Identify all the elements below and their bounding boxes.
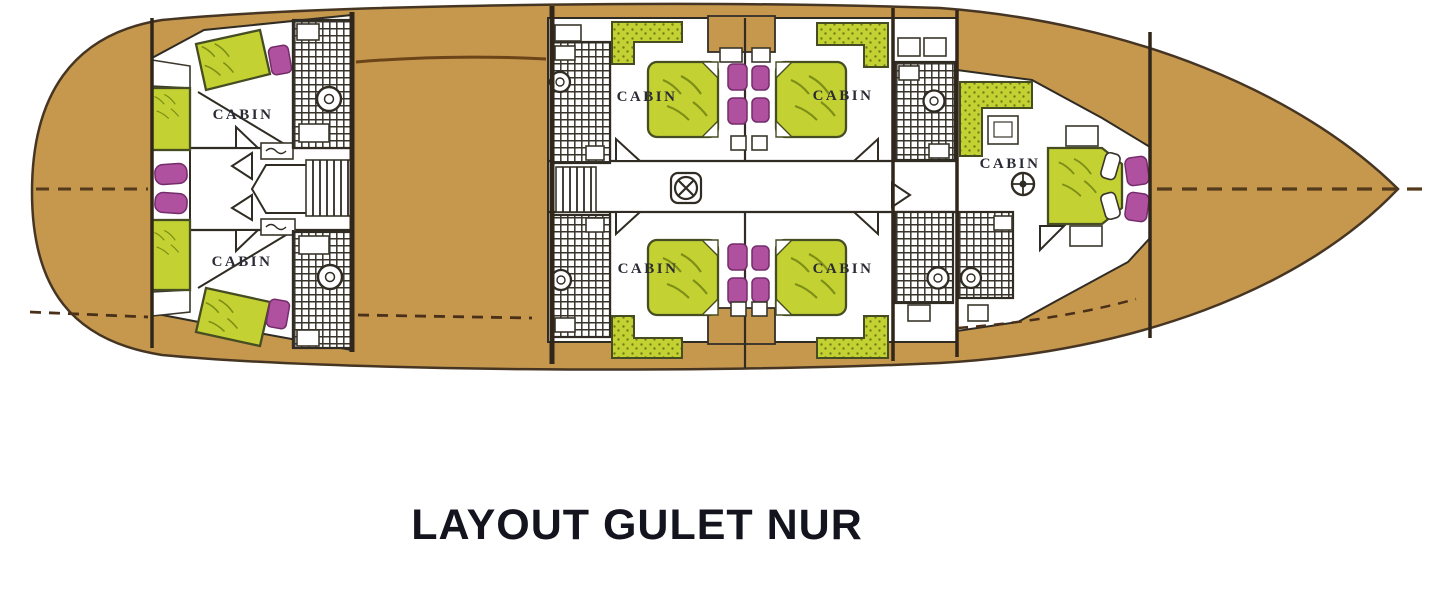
nightstand (1066, 126, 1098, 146)
cabin-label-mid-starboard-aft: CABIN (618, 261, 679, 277)
cabin-label-aft-starboard: CABIN (212, 254, 273, 270)
cabin-label-mid-port-fore: CABIN (813, 88, 874, 104)
cabin-label-mid-starboard-fore: CABIN (813, 261, 874, 277)
cabin-label-aft-port: CABIN (213, 107, 274, 123)
deck-plan-page: CABIN CABIN CABIN CABIN CABIN CABIN CABI… (0, 0, 1436, 600)
nightstand (1070, 226, 1102, 246)
shower-icon (961, 268, 981, 288)
deck-hatch-icon (671, 173, 701, 203)
plan-title: LAYOUT GULET NUR (0, 501, 1274, 550)
cabin-label-mid-port-aft: CABIN (617, 89, 678, 105)
stairs-icon (556, 167, 596, 212)
cabin-label-bow: CABIN (980, 156, 1041, 172)
deckhouse-notch-top (708, 16, 775, 52)
stairs-icon (306, 160, 352, 216)
stove-icon (988, 116, 1018, 144)
seat (152, 290, 190, 316)
bow-bathroom (958, 212, 1013, 298)
bow-bed (1048, 148, 1122, 224)
helm-icon (1012, 173, 1034, 195)
companionway-wedge (252, 165, 313, 213)
